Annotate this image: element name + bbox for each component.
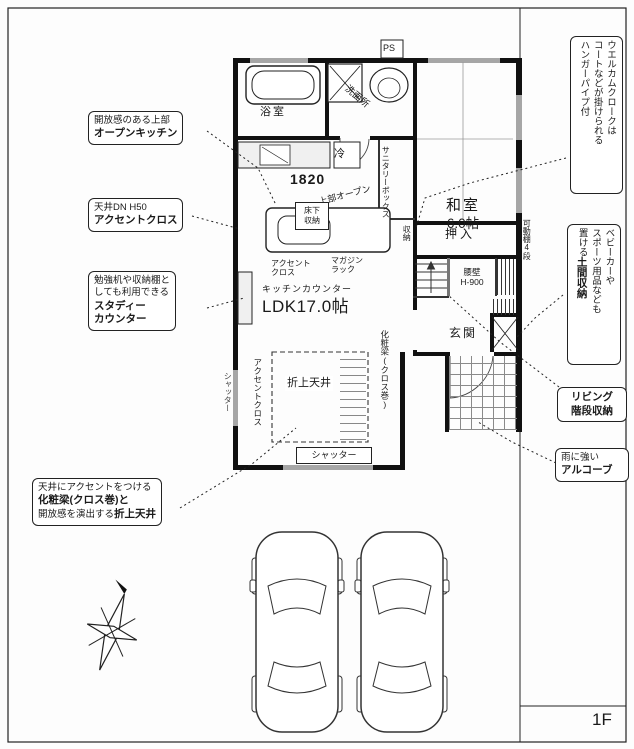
- koshikabe-label: 腰壁 H-900: [451, 262, 493, 292]
- compass-icon: [75, 575, 153, 678]
- shutter-left-label: シャッター: [223, 372, 232, 428]
- floor-storage-box: 床下 収納: [295, 202, 329, 230]
- accent-cross-label: アクセントクロス: [271, 259, 311, 277]
- callout-alcove: 雨に強い アルコーブ: [555, 448, 629, 482]
- shutter-bottom-label: シャッター: [296, 447, 372, 464]
- movable-shelf-label: 可動棚4段: [522, 219, 531, 287]
- bathtub-inner: [252, 71, 314, 99]
- callout-living-stairs: リビング 階段収納: [557, 387, 627, 422]
- alcove-tile-floor: [449, 356, 517, 430]
- shuno-label: 収納: [402, 225, 411, 253]
- ps-label: PS: [383, 43, 401, 53]
- study-counter-top: [238, 272, 252, 324]
- kitchen-counter-label: キッチンカウンター: [262, 284, 352, 294]
- tatami-lines: [417, 62, 513, 219]
- sanitary-box-label: サニタリーボックス: [381, 146, 390, 224]
- accent-cross-vertical-label: アクセントクロス: [252, 358, 262, 444]
- fridge-label: 冷: [334, 148, 360, 161]
- floorplan-page: PS 浴室 洗面所 冷 1820 サニタリーボックス 上部オープン 床下 収納 …: [0, 0, 634, 749]
- doma-storage-hatch-2: [493, 299, 516, 315]
- leader-doma-storage: [516, 295, 563, 338]
- coved-ceiling-label: 折上天井: [285, 376, 333, 391]
- ceiling-beam-hatch: [340, 356, 366, 440]
- callout-open-kitchen: 開放感のある上部 オープンキッチン: [88, 111, 183, 145]
- callout-study-counter: 勉強机や収納棚と しても利用できる スタディー カウンター: [88, 271, 176, 331]
- washitsu-label: 和室: [430, 197, 496, 214]
- staircase: [415, 262, 447, 293]
- ldk-room-label: LDK17.0帖: [262, 297, 349, 317]
- callout-ceiling-beam: 天井にアクセントをつける 化粧梁(クロス巻)と 開放感を演出する折上天井: [32, 478, 162, 526]
- car-left: [250, 532, 344, 732]
- doma-storage-hatch: [497, 259, 515, 295]
- beam-wrap-label: 化粧梁(クロス巻): [379, 330, 389, 436]
- callout-accent-dn: 天井DN H50 アクセントクロス: [88, 198, 183, 232]
- genkan-label: 玄関: [449, 327, 477, 341]
- callout-doma-storage: ベビーカーや スポーツ用品なども 置ける土間収納: [567, 224, 621, 365]
- leader-accent-dn: [192, 216, 240, 229]
- floor-label: 1F: [592, 710, 612, 730]
- car-right: [355, 532, 449, 732]
- magazine-rack-label: マガジンラック: [331, 256, 363, 274]
- bath-label: 浴室: [260, 106, 286, 119]
- oshiire-label: 押入: [445, 228, 475, 242]
- dimension-1820: 1820: [290, 171, 325, 187]
- callout-welcome-cloak: ウエルカムクロークは コートなどが掛けられる ハンガーパイプ付: [570, 36, 623, 194]
